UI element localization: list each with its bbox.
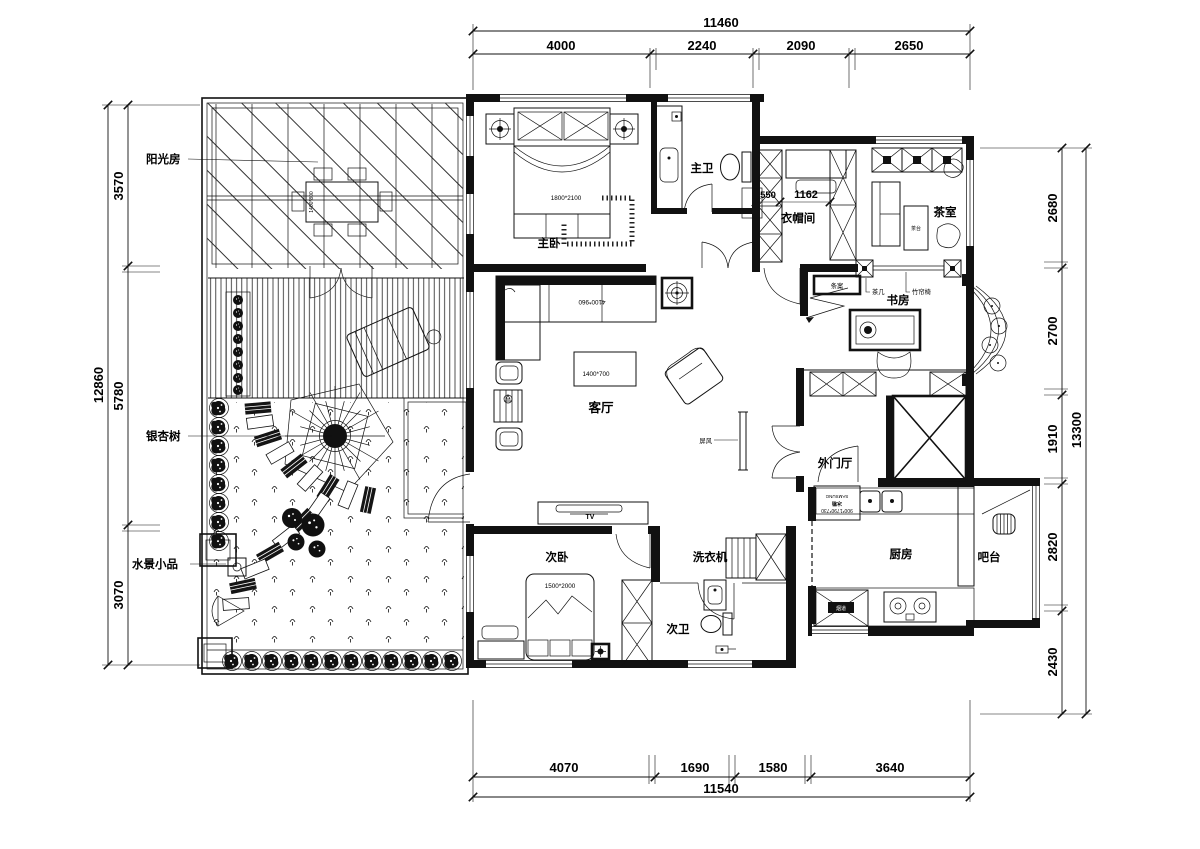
fridge: 900*1790*730 冰箱 SAMSUNG xyxy=(814,486,860,520)
laundry-cabinet xyxy=(756,534,786,580)
dim-right-seg: 2820 xyxy=(1045,533,1060,562)
room-label-washer: 洗衣机 xyxy=(693,550,728,564)
tree-row-bottom xyxy=(207,650,463,671)
closet-door xyxy=(764,268,800,304)
dim-left-seg: 3070 xyxy=(111,581,126,610)
dim-right-seg: 2430 xyxy=(1045,648,1060,677)
dim-bottom-seg: 1580 xyxy=(759,760,788,775)
screen-label: 屏风 xyxy=(699,437,712,445)
nook-diagonal xyxy=(982,490,1030,514)
entry-double-door xyxy=(772,426,800,478)
room-label-living-room: 客厅 xyxy=(587,400,614,415)
label-sunroom: 阳光房 xyxy=(146,152,181,166)
desk xyxy=(478,641,524,659)
wardrobe xyxy=(622,580,652,666)
window xyxy=(464,292,476,388)
room-label-second-bedroom: 次卧 xyxy=(546,550,569,564)
room-label-tea-room: 茶室 xyxy=(933,205,957,219)
bamboo-screen-label: 竹帘椅 xyxy=(912,287,932,296)
tea-side-table-label: 茶几 xyxy=(872,287,885,296)
dining-table-size: 1400*800 xyxy=(309,191,315,213)
hall-double-door xyxy=(702,242,754,268)
stool xyxy=(482,626,518,639)
second-bath: 洗衣机 次卫 xyxy=(667,534,787,653)
master-bath: 主卫 xyxy=(656,106,762,218)
stove xyxy=(884,592,936,622)
chair xyxy=(877,352,911,378)
rug xyxy=(564,198,632,244)
window xyxy=(464,194,476,234)
sunroom-area: 1400*800 xyxy=(207,103,463,298)
window xyxy=(464,116,476,156)
dim-bottom-seg: 4070 xyxy=(550,760,579,775)
dimension-right: 2680 2700 1910 2820 2430 13300 xyxy=(980,144,1092,718)
room-label-bar: 吧台 xyxy=(978,550,1001,564)
master-bath-door xyxy=(684,184,712,212)
dim-right-total: 13300 xyxy=(1069,412,1084,448)
window xyxy=(668,92,750,104)
stone xyxy=(937,224,960,248)
label-water-feature: 水景小品 xyxy=(132,557,178,571)
nightstand xyxy=(610,114,638,144)
closet-dim-a: 550 xyxy=(760,190,776,201)
room-label-foyer: 外门厅 xyxy=(817,456,853,470)
fridge-brand: SAMSUNG xyxy=(825,494,848,499)
dim-top-seg: 2090 xyxy=(787,38,816,53)
flue: 烟道 xyxy=(814,590,868,626)
dim-right-seg: 2680 xyxy=(1045,194,1060,223)
window xyxy=(464,556,476,612)
toilet xyxy=(721,152,752,182)
closet-dim-b: 1162 xyxy=(794,189,818,201)
dim-bottom-seg: 3640 xyxy=(876,760,905,775)
bath2-toilet xyxy=(701,613,732,635)
plant-stand xyxy=(494,390,522,422)
side-table xyxy=(496,428,522,450)
coffee-table-size: 1400*700 xyxy=(583,371,610,378)
tea-room: 茶台 茶室 xyxy=(872,148,963,250)
floor-plan-drawing: 1400*800 xyxy=(0,0,1200,849)
tv-label: TV xyxy=(586,514,595,521)
window xyxy=(1030,486,1042,618)
garden-ground xyxy=(198,384,470,671)
kitchen: 900*1790*730 冰箱 SAMSUNG 烟道 厨房 吧台 xyxy=(812,486,1015,626)
bath2-sink xyxy=(704,580,726,610)
master-bed: 1800*2100 xyxy=(514,108,610,238)
garden: 1400*800 xyxy=(198,98,470,674)
stone xyxy=(944,159,963,177)
room-label-master-bedroom: 主卧 xyxy=(538,236,561,250)
dim-top-seg: 2650 xyxy=(895,38,924,53)
window xyxy=(964,160,976,246)
dimension-bottom: 4070 1690 1580 3640 11540 xyxy=(469,700,974,802)
living-room: 4100*960 1400*700 屏风 TV 客厅 xyxy=(494,276,748,524)
dim-bottom-seg: 1690 xyxy=(681,760,710,775)
side-table xyxy=(496,362,522,384)
nightstand xyxy=(486,114,514,144)
dim-left-seg: 3570 xyxy=(111,172,126,201)
label-ginkgo-tree: 银杏树 xyxy=(146,429,181,443)
sofa-size: 4100*960 xyxy=(578,298,605,305)
dim-bottom-total: 11540 xyxy=(703,781,738,796)
study: 书房 xyxy=(850,293,920,378)
planter-box xyxy=(592,644,609,659)
tap xyxy=(716,646,736,653)
dimension-top: 11460 4000 2240 2090 2650 xyxy=(469,15,974,90)
closet: 550 1162 衣帽间 xyxy=(752,150,856,262)
dim-top-total: 11460 xyxy=(703,15,738,30)
floor-plan-canvas: 1400*800 xyxy=(0,0,1200,849)
bar-stool xyxy=(993,514,1015,534)
bedroom2-door xyxy=(616,534,650,568)
room-label-study: 书房 xyxy=(887,293,910,307)
dim-top-seg: 2240 xyxy=(688,38,717,53)
sink xyxy=(860,491,902,512)
second-bedroom: 1500*2000 次卧 xyxy=(478,550,652,666)
dimension-left: 12860 3570 5780 3070 xyxy=(91,101,200,669)
room-label-kitchen: 厨房 xyxy=(890,547,913,561)
master-bedroom: 1800*2100 主卧 xyxy=(486,108,638,250)
tv-unit: TV xyxy=(538,502,648,524)
walls xyxy=(466,94,1040,668)
dim-right-seg: 1910 xyxy=(1045,425,1060,454)
coffee-table: 1400*700 xyxy=(574,352,636,386)
deck-area xyxy=(208,278,464,398)
dim-top-seg: 4000 xyxy=(547,38,576,53)
armchair xyxy=(662,344,724,405)
screen-divider: 屏风 xyxy=(699,412,748,470)
window xyxy=(688,658,752,670)
dim-right-seg: 2700 xyxy=(1045,317,1060,346)
washing-machine xyxy=(726,538,756,578)
window xyxy=(500,92,626,104)
end-table xyxy=(662,278,692,308)
flue-label: 烟道 xyxy=(836,605,846,612)
fridge-name: 冰箱 xyxy=(832,500,842,507)
tea-sofa xyxy=(872,182,900,246)
window xyxy=(876,134,962,146)
dim-left-seg: 5780 xyxy=(111,382,126,411)
dim-left-total: 12860 xyxy=(91,367,106,403)
fridge-size: 900*1790*730 xyxy=(821,507,853,513)
master-bed-size: 1800*2100 xyxy=(551,195,582,202)
room-label-second-bath: 次卫 xyxy=(667,622,690,636)
second-bed-size: 1500*2000 xyxy=(545,583,576,590)
tea-table-label: 茶台 xyxy=(911,225,921,232)
room-label-closet: 衣帽间 xyxy=(781,211,816,225)
sofa: 4100*960 xyxy=(496,276,656,360)
console-table-label: 条案 xyxy=(831,281,844,290)
second-bed: 1500*2000 xyxy=(526,574,594,660)
bar-counter xyxy=(958,486,974,586)
room-label-master-bath: 主卫 xyxy=(691,161,714,175)
